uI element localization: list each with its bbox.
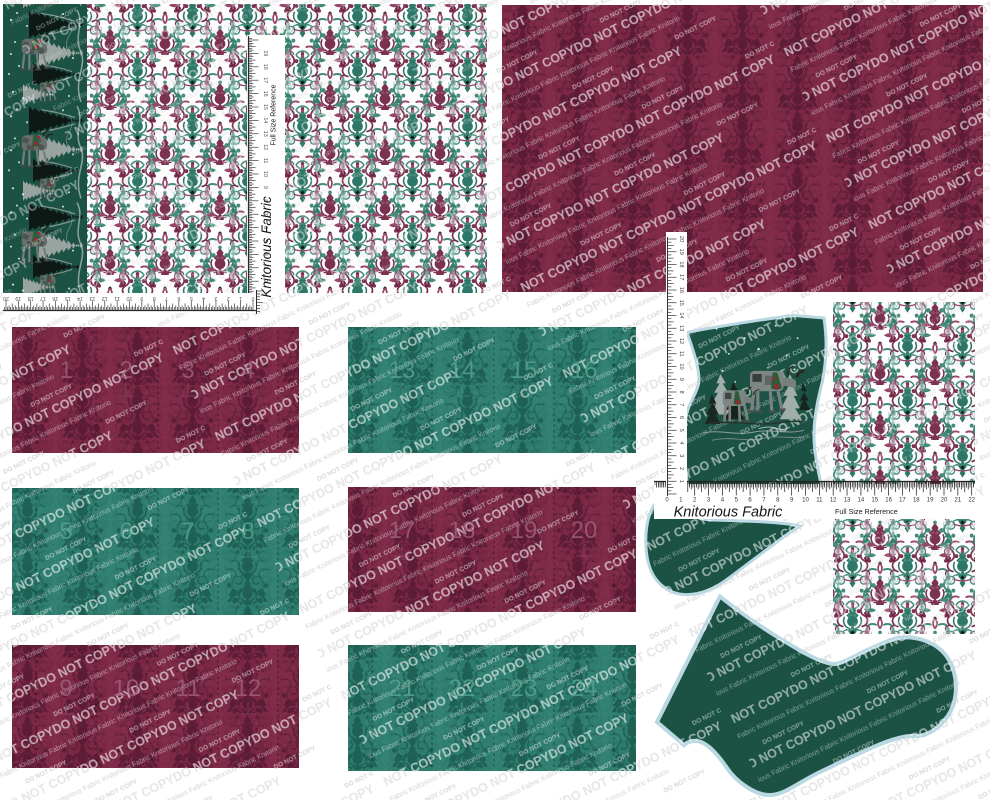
svg-text:14: 14	[77, 295, 83, 301]
svg-text:6: 6	[119, 518, 132, 545]
svg-text:14: 14	[262, 117, 268, 123]
svg-text:0: 0	[252, 295, 255, 301]
svg-text:1: 1	[239, 295, 242, 301]
svg-text:2: 2	[678, 467, 684, 470]
svg-text:5: 5	[59, 518, 72, 545]
svg-text:6: 6	[177, 295, 180, 301]
svg-text:4: 4	[202, 295, 205, 301]
svg-text:13: 13	[844, 498, 851, 504]
svg-text:17: 17	[262, 77, 268, 83]
svg-text:15: 15	[871, 498, 878, 504]
svg-text:12: 12	[102, 295, 108, 301]
svg-text:5: 5	[678, 429, 684, 432]
svg-text:Knitorious Fabric: Knitorious Fabric	[674, 505, 784, 521]
svg-text:10: 10	[262, 171, 268, 177]
svg-text:20: 20	[941, 498, 948, 504]
svg-text:14: 14	[449, 357, 476, 384]
svg-text:18: 18	[913, 498, 920, 504]
svg-text:8: 8	[678, 390, 684, 393]
svg-text:14: 14	[678, 312, 684, 318]
svg-text:15: 15	[65, 295, 71, 301]
svg-text:11: 11	[678, 351, 684, 357]
svg-text:20: 20	[678, 236, 684, 242]
svg-text:10: 10	[802, 498, 809, 504]
svg-text:7: 7	[181, 518, 194, 545]
svg-text:2: 2	[227, 295, 230, 301]
svg-text:3: 3	[181, 357, 194, 384]
svg-text:3: 3	[214, 295, 217, 301]
svg-text:18: 18	[449, 517, 476, 544]
svg-text:10: 10	[113, 675, 140, 702]
svg-text:1: 1	[59, 357, 72, 384]
svg-text:16: 16	[678, 287, 684, 293]
svg-text:10: 10	[127, 295, 133, 301]
svg-text:11: 11	[176, 675, 201, 702]
svg-text:7: 7	[165, 295, 168, 301]
svg-text:19: 19	[262, 50, 268, 56]
svg-text:3: 3	[678, 454, 684, 457]
svg-text:11: 11	[114, 295, 120, 301]
svg-text:19: 19	[678, 249, 684, 255]
svg-text:18: 18	[262, 64, 268, 70]
svg-text:15: 15	[262, 104, 268, 110]
svg-text:1: 1	[678, 480, 684, 483]
svg-text:21: 21	[955, 498, 962, 504]
svg-text:Knitorious Fabric: Knitorious Fabric	[259, 196, 274, 298]
svg-text:15: 15	[678, 300, 684, 306]
svg-text:16: 16	[571, 357, 598, 384]
svg-text:13: 13	[89, 295, 95, 301]
svg-text:13: 13	[389, 357, 416, 384]
svg-text:13: 13	[262, 131, 268, 137]
svg-text:12: 12	[830, 498, 837, 504]
svg-text:17: 17	[678, 274, 684, 280]
svg-text:6: 6	[678, 416, 684, 419]
svg-text:19: 19	[511, 517, 538, 544]
svg-text:17: 17	[40, 295, 46, 301]
svg-text:7: 7	[678, 403, 684, 406]
svg-text:8: 8	[241, 518, 254, 545]
svg-text:8: 8	[153, 295, 156, 301]
svg-text:12: 12	[678, 338, 684, 344]
svg-text:13: 13	[678, 325, 684, 331]
svg-text:21: 21	[389, 675, 416, 702]
svg-text:17: 17	[389, 517, 416, 544]
svg-text:Full Size Reference: Full Size Reference	[271, 84, 278, 145]
svg-text:15: 15	[511, 357, 538, 384]
svg-text:17: 17	[899, 498, 906, 504]
svg-text:14: 14	[858, 498, 865, 504]
svg-text:16: 16	[885, 498, 892, 504]
svg-text:20: 20	[571, 517, 598, 544]
svg-text:9: 9	[262, 186, 268, 189]
svg-text:4: 4	[678, 441, 684, 444]
svg-text:22: 22	[449, 675, 476, 702]
svg-text:16: 16	[262, 91, 268, 97]
svg-text:5: 5	[190, 295, 193, 301]
svg-text:9: 9	[140, 295, 143, 301]
svg-text:4: 4	[241, 357, 254, 384]
svg-text:11: 11	[816, 498, 823, 504]
svg-text:9: 9	[678, 378, 684, 381]
svg-text:10: 10	[678, 363, 684, 369]
svg-text:Full Size Reference: Full Size Reference	[835, 507, 898, 516]
svg-text:18: 18	[28, 295, 34, 301]
svg-text:16: 16	[52, 295, 58, 301]
svg-text:12: 12	[235, 675, 262, 702]
svg-text:2: 2	[119, 357, 132, 384]
svg-text:9: 9	[59, 675, 72, 702]
svg-text:24: 24	[571, 675, 598, 702]
svg-text:23: 23	[511, 675, 538, 702]
svg-text:11: 11	[262, 158, 268, 164]
svg-text:22: 22	[968, 498, 975, 504]
svg-text:18: 18	[678, 261, 684, 267]
svg-text:12: 12	[262, 144, 268, 150]
svg-text:20: 20	[3, 295, 9, 301]
svg-text:19: 19	[927, 498, 934, 504]
svg-text:19: 19	[15, 295, 21, 301]
